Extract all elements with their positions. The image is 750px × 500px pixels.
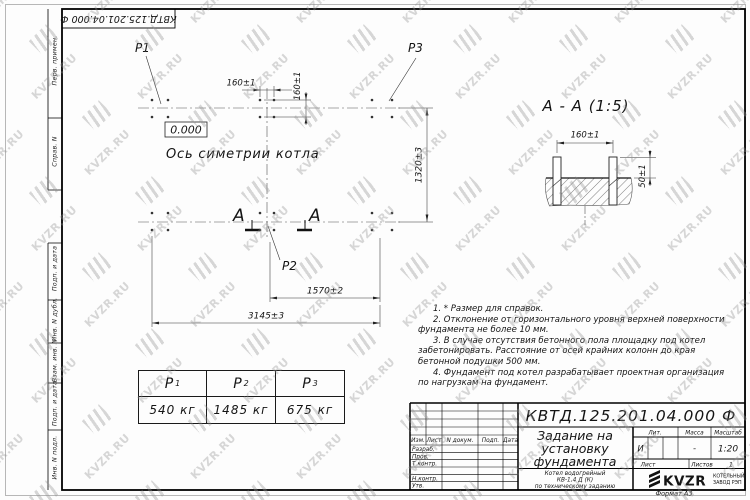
titleblock-doc-number: КВТД.125.201.04.000 Ф [526, 407, 737, 425]
anchor-bolt-dots [151, 99, 394, 232]
bolt-dot [371, 229, 374, 232]
bolt-dot [391, 99, 394, 102]
section-cut-letter-left: А [232, 206, 245, 226]
mass-value: - [693, 444, 696, 454]
kvzr-logo-icon [649, 470, 660, 488]
plan-centerlines [138, 88, 400, 240]
bolt-dot [167, 229, 170, 232]
note-3: 3. В случае отсутствия бетонного пола пл… [418, 336, 732, 368]
col-podp: Подп. [482, 438, 500, 444]
technical-notes: 1. * Размер для справок. 2. Отклонение о… [418, 304, 732, 389]
subtitle-line2: КВ-1,4 Д (К) [557, 478, 593, 484]
note-2: 2. Отклонение от горизонтального уровня … [418, 315, 732, 336]
bolt-dot [259, 116, 262, 119]
bolt-dot [151, 116, 154, 119]
row-tkontr: Т.контр. [412, 462, 437, 468]
bolt-dot [371, 116, 374, 119]
note-1: 1. * Размер для справок. [418, 304, 732, 315]
drawing-sheet: P1 P3 P2 0.000 Ось симетрии котла А А [0, 0, 750, 500]
load-value-p1: 540 кг [139, 397, 207, 423]
section-cut-marks [252, 220, 305, 229]
bolt-dot [371, 99, 374, 102]
load-table-header-p3: P3 [276, 371, 344, 397]
bolt-dot [391, 212, 394, 215]
sheet-label: Лист [640, 463, 656, 469]
format-label: Формат А3 [655, 490, 692, 498]
bolt-dot [167, 116, 170, 119]
subtitle-line1: Котел водогрейный [545, 471, 606, 477]
dim-bolt-pitch-h: 160±1 [227, 79, 256, 89]
boiler-axis-label: Ось симетрии котла [166, 147, 319, 162]
section-aa: А - А (1:5) 160±1 50±1 [541, 97, 656, 225]
company-line1: КОТЕЛЬНЫЙ [713, 473, 745, 480]
foundation-plan: P1 P3 P2 0.000 Ось симетрии котла А А [135, 41, 433, 327]
row-utv: Утв. [412, 484, 424, 490]
col-ndokum: N докум. [447, 438, 474, 444]
drawing-linework: P1 P3 P2 0.000 Ось симетрии котла А А [0, 0, 750, 500]
row-nkontr: Н.контр. [412, 476, 438, 482]
load-table: P1 P2 P3 540 кг 1485 кг 675 кг [138, 370, 345, 424]
load-value-p2: 1485 кг [207, 397, 276, 423]
bolt-dot [259, 99, 262, 102]
dim-width: 1320±3 [415, 147, 425, 183]
bolt-dot [151, 99, 154, 102]
bolt-dot [259, 212, 262, 215]
bolt-dot [371, 212, 374, 215]
company-line2: ЗАВОД РЭП [713, 480, 742, 486]
lit-label: Лит. [647, 431, 662, 437]
bolt-dot [167, 99, 170, 102]
side-label-inv-podl: Инв. N подл. [52, 408, 59, 500]
dim-span-inner: 1570±2 [307, 287, 343, 297]
mass-label: Масса [685, 431, 704, 437]
row-prov: Пров. [412, 454, 429, 460]
load-table-header-p2: P2 [207, 371, 276, 397]
load-table-header-p1: P1 [139, 371, 207, 397]
title-block: КВТД.125.201.04.000 Ф Задание на установ… [410, 403, 745, 498]
load-value-p3: 675 кг [276, 397, 344, 423]
subtitle-line3: по техническому заданию [535, 484, 616, 490]
doc-title-line3: фундамента [534, 454, 617, 469]
point-p3-label: P3 [408, 41, 423, 55]
lit-value: И [637, 445, 644, 455]
sheets-value: 1 [729, 461, 733, 469]
col-data: Дата [502, 438, 518, 444]
scale-label: Масштаб [714, 431, 742, 437]
bolt-dot [391, 116, 394, 119]
point-p1-label: P1 [135, 41, 150, 55]
anchor-bolt-right [609, 157, 617, 205]
section-dim-bolt-pitch: 160±1 [571, 131, 600, 141]
anchor-bolt-left [553, 157, 561, 205]
corner-stamp: КВТД.125.201.04.000 Ф [62, 9, 175, 28]
section-dim-protrusion: 50±1 [638, 164, 648, 187]
point-p2-label: P2 [282, 259, 297, 273]
col-list: Лист [426, 438, 442, 444]
bolt-dot [391, 229, 394, 232]
dim-length-total: 3145±3 [248, 312, 284, 322]
elevation-mark: 0.000 [170, 124, 202, 137]
scale-value: 1:20 [718, 445, 738, 455]
bolt-dot [151, 229, 154, 232]
bolt-dot [167, 212, 170, 215]
section-cut-letter-right: А [308, 206, 321, 226]
bolt-dot [273, 212, 276, 215]
section-title: А - А (1:5) [541, 97, 629, 115]
dim-bolt-pitch-v: 160±1 [293, 72, 303, 101]
row-razrab: Разраб. [412, 447, 435, 453]
bolt-dot [151, 212, 154, 215]
sheets-label: Листов [690, 463, 713, 469]
bolt-dot [273, 229, 276, 232]
side-label-sprav-n: Справ. N [52, 102, 59, 202]
side-label-perv-primen: Перв. примен. [52, 11, 59, 111]
note-4: 4. Фундамент под котел разрабатывает про… [418, 368, 732, 389]
col-izm: Изм. [411, 438, 425, 444]
logo-text: KVZR [663, 474, 706, 490]
